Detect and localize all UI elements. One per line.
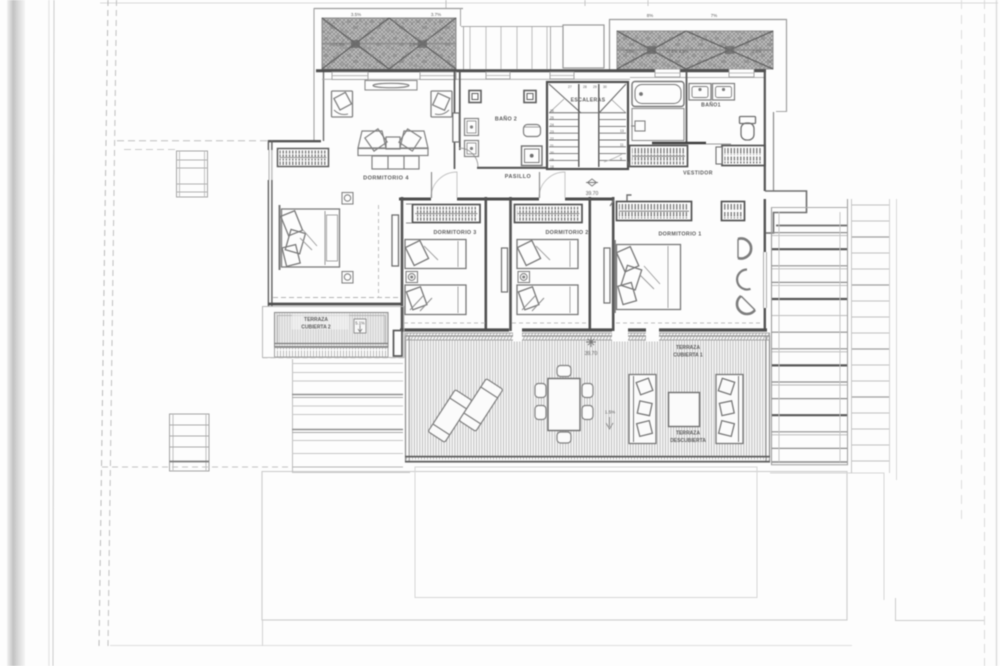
svg-text:8%: 8% <box>647 13 654 18</box>
svg-text:39.70: 39.70 <box>586 191 599 197</box>
svg-text:25: 25 <box>550 116 554 120</box>
svg-text:VESTIDOR: VESTIDOR <box>683 171 713 177</box>
svg-text:CUBIERTA 1: CUBIERTA 1 <box>673 353 703 359</box>
svg-text:13: 13 <box>620 129 624 133</box>
svg-text:DORMITORIO 4: DORMITORIO 4 <box>363 176 409 182</box>
svg-text:24: 24 <box>550 123 554 127</box>
svg-text:29: 29 <box>593 85 597 89</box>
svg-text:DORMITORIO 3: DORMITORIO 3 <box>433 230 476 236</box>
svg-text:23: 23 <box>550 130 554 134</box>
svg-text:26: 26 <box>550 109 554 113</box>
svg-text:20: 20 <box>550 151 554 155</box>
svg-text:BAÑO 2: BAÑO 2 <box>495 116 517 123</box>
svg-text:TERRAZA: TERRAZA <box>676 345 700 351</box>
svg-text:3.7%: 3.7% <box>431 12 441 17</box>
svg-text:30: 30 <box>603 85 607 89</box>
svg-text:TERRAZA: TERRAZA <box>676 431 700 437</box>
svg-text:11: 11 <box>620 143 624 147</box>
svg-text:19: 19 <box>550 158 554 162</box>
svg-text:DESCUBIERTA: DESCUBIERTA <box>670 438 706 444</box>
svg-text:5.1%: 5.1% <box>355 321 365 326</box>
svg-text:12.5% 4.9%: 12.5% 4.9% <box>666 49 689 54</box>
svg-text:22: 22 <box>550 137 554 141</box>
svg-text:3.9%: 3.9% <box>335 42 345 47</box>
svg-text:3.8%: 3.8% <box>625 49 635 54</box>
svg-text:7%: 7% <box>711 13 718 18</box>
svg-text:BAÑO1: BAÑO1 <box>701 102 721 109</box>
svg-text:PASILLO: PASILLO <box>505 174 531 180</box>
svg-text:2.6%: 2.6% <box>752 49 762 54</box>
svg-text:2.9%: 2.9% <box>409 42 419 47</box>
svg-text:28: 28 <box>583 85 587 89</box>
svg-text:9: 9 <box>620 157 622 161</box>
svg-text:TERRAZA: TERRAZA <box>304 317 328 323</box>
svg-text:DORMITORIO 2: DORMITORIO 2 <box>545 230 588 236</box>
svg-text:39.70: 39.70 <box>585 351 598 357</box>
svg-text:27: 27 <box>568 85 572 89</box>
svg-text:3.5%: 3.5% <box>351 12 361 17</box>
svg-text:CUBIERTA 2: CUBIERTA 2 <box>301 325 331 331</box>
svg-text:18: 18 <box>550 165 554 169</box>
svg-text:21: 21 <box>550 144 554 148</box>
svg-text:DORMITORIO 1: DORMITORIO 1 <box>658 232 701 238</box>
svg-text:1.5%: 1.5% <box>605 410 615 415</box>
svg-text:ESCALERAS: ESCALERAS <box>571 98 606 104</box>
